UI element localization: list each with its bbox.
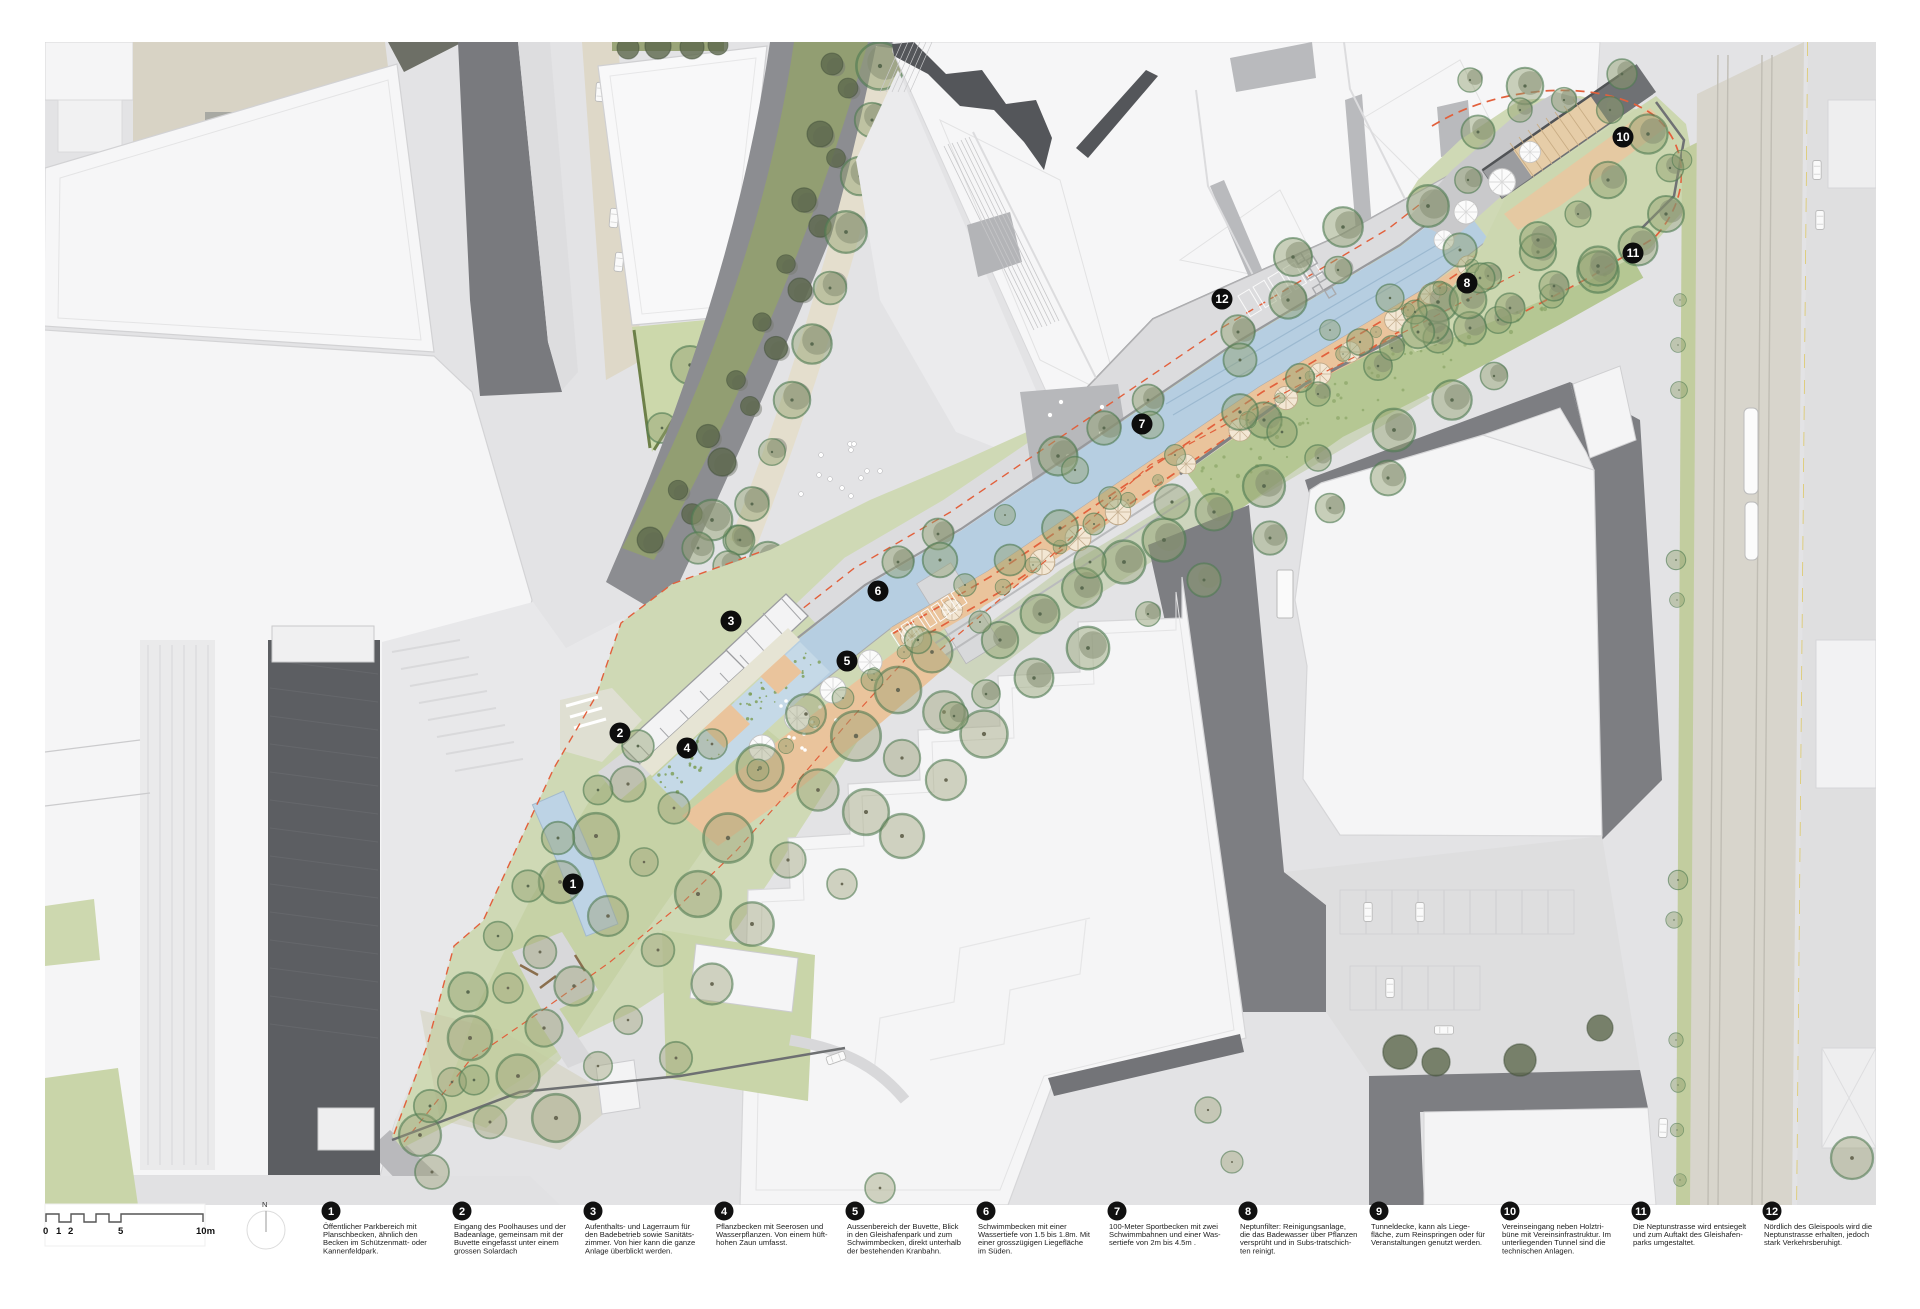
svg-text:1: 1	[570, 877, 577, 891]
svg-text:Kannenfeldpark.: Kannenfeldpark.	[323, 1246, 378, 1255]
svg-text:Veranstaltungen genutzt werden: Veranstaltungen genutzt werden.	[1371, 1238, 1482, 1247]
svg-text:10: 10	[1504, 1206, 1516, 1218]
svg-text:stark Verkehrsberuhigt.: stark Verkehrsberuhigt.	[1764, 1238, 1842, 1247]
svg-text:2: 2	[617, 726, 624, 740]
svg-text:0: 0	[43, 1226, 48, 1237]
svg-text:11: 11	[1627, 246, 1640, 260]
svg-text:10: 10	[1616, 130, 1630, 144]
svg-text:9: 9	[1376, 1206, 1382, 1218]
svg-text:Anlage überblickt werden.: Anlage überblickt werden.	[585, 1246, 672, 1255]
svg-text:3: 3	[590, 1206, 596, 1218]
svg-text:7: 7	[1114, 1206, 1120, 1218]
svg-text:der bestehenden Kranbahn.: der bestehenden Kranbahn.	[847, 1246, 941, 1255]
svg-text:1: 1	[328, 1206, 334, 1218]
svg-text:5: 5	[118, 1226, 124, 1237]
svg-text:technischen Anlagen.: technischen Anlagen.	[1502, 1246, 1574, 1255]
svg-text:parks umgestaltet.: parks umgestaltet.	[1633, 1238, 1695, 1247]
svg-text:hohen Zaun umfasst.: hohen Zaun umfasst.	[716, 1238, 787, 1247]
svg-text:3: 3	[728, 614, 735, 628]
svg-text:8: 8	[1245, 1206, 1251, 1218]
svg-text:12: 12	[1215, 292, 1229, 306]
svg-text:4: 4	[684, 741, 691, 755]
svg-text:12: 12	[1766, 1206, 1778, 1218]
svg-text:6: 6	[875, 584, 882, 598]
svg-text:im Süden.: im Süden.	[978, 1246, 1012, 1255]
svg-text:sertiefe von 2m bis 4.5m .: sertiefe von 2m bis 4.5m .	[1109, 1238, 1196, 1247]
svg-text:2: 2	[68, 1226, 73, 1237]
svg-text:N: N	[262, 1200, 267, 1209]
svg-text:8: 8	[1464, 276, 1471, 290]
svg-text:4: 4	[721, 1206, 728, 1218]
svg-text:10m: 10m	[196, 1226, 215, 1237]
svg-text:ten reinigt.: ten reinigt.	[1240, 1246, 1275, 1255]
svg-text:6: 6	[983, 1206, 989, 1218]
svg-text:5: 5	[852, 1206, 858, 1218]
svg-text:2: 2	[459, 1206, 465, 1218]
svg-text:1: 1	[56, 1226, 62, 1237]
svg-text:5: 5	[844, 654, 851, 668]
svg-text:11: 11	[1635, 1206, 1647, 1218]
svg-text:7: 7	[1139, 417, 1146, 431]
svg-text:grossen Solardach: grossen Solardach	[454, 1246, 517, 1255]
